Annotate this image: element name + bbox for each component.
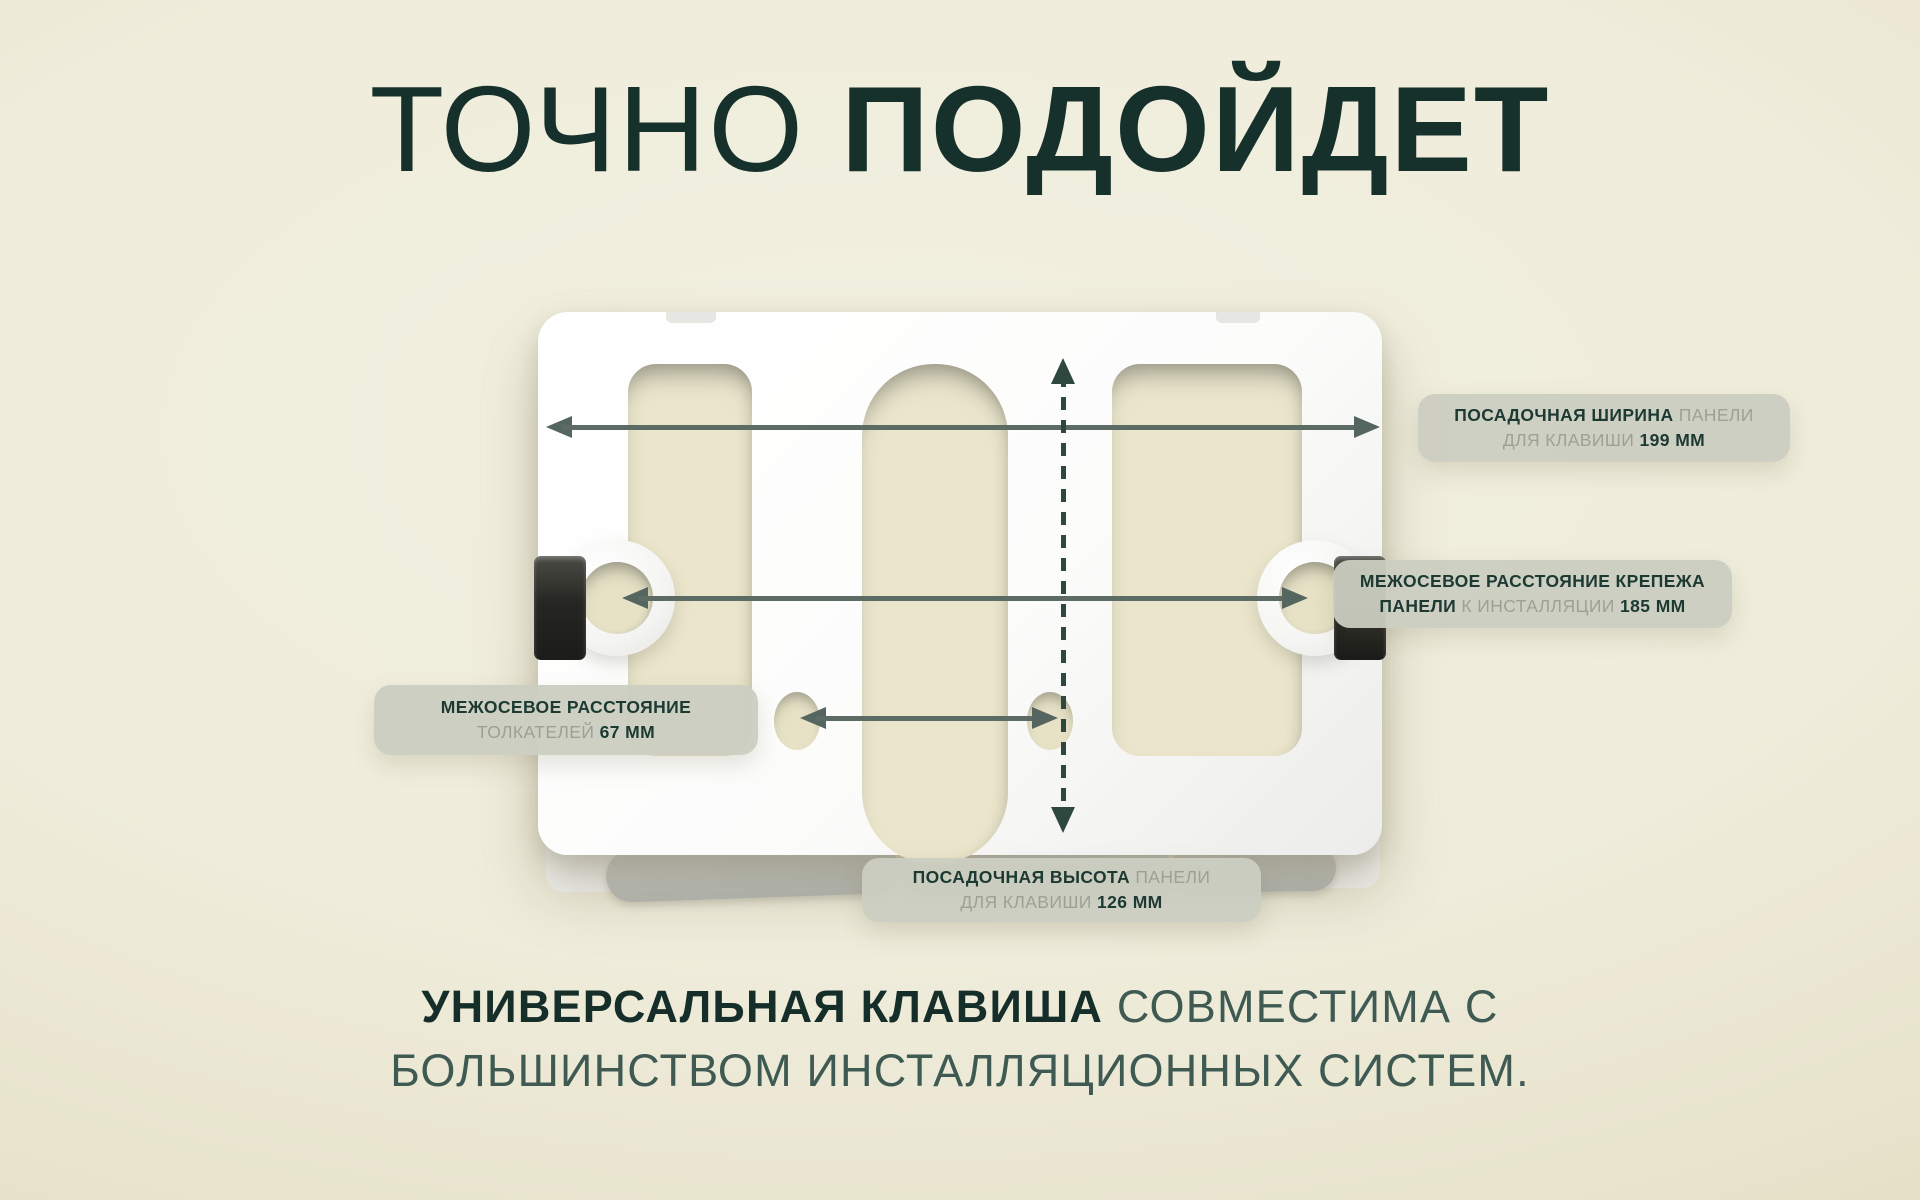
callout-line: ДЛЯ КЛАВИШИ 126 ММ bbox=[960, 890, 1162, 915]
arrow-dashed-shaft bbox=[1061, 374, 1066, 817]
callout-panel-width: ПОСАДОЧНАЯ ШИРИНА ПАНЕЛИ ДЛЯ КЛАВИШИ 199… bbox=[1418, 394, 1790, 462]
arrow-shaft bbox=[562, 425, 1364, 430]
product-mounting-frame bbox=[538, 312, 1382, 855]
frame-notch-left bbox=[666, 312, 716, 323]
arrow-shaft bbox=[816, 716, 1042, 721]
side-clip-left bbox=[534, 556, 586, 660]
arrow-shaft bbox=[638, 596, 1292, 601]
infographic-canvas: ТОЧНО ПОДОЙДЕТ bbox=[0, 0, 1920, 1200]
arrow-head-down-icon bbox=[1051, 807, 1075, 833]
frame-slot-center bbox=[862, 364, 1008, 864]
callout-line: МЕЖОСЕВОЕ РАССТОЯНИЕ КРЕПЕЖА bbox=[1360, 569, 1705, 594]
frame-notch-right bbox=[1216, 312, 1260, 323]
callout-mount-spacing: МЕЖОСЕВОЕ РАССТОЯНИЕ КРЕПЕЖА ПАНЕЛИ К ИН… bbox=[1333, 560, 1732, 628]
tagline-line2: БОЛЬШИНСТВОМ ИНСТАЛЛЯЦИОННЫХ СИСТЕМ. bbox=[390, 1045, 1530, 1096]
callout-line: ТОЛКАТЕЛЕЙ 67 ММ bbox=[477, 720, 655, 745]
callout-line: ПОСАДОЧНАЯ ШИРИНА ПАНЕЛИ bbox=[1454, 403, 1754, 428]
arrow-head-right-icon bbox=[1282, 587, 1308, 609]
arrow-head-right-icon bbox=[1354, 416, 1380, 438]
arrow-head-right-icon bbox=[1032, 707, 1058, 729]
tagline-regular: СОВМЕСТИМА С bbox=[1117, 981, 1499, 1032]
page-title-regular: ТОЧНО bbox=[370, 61, 806, 197]
callout-pusher-spacing: МЕЖОСЕВОЕ РАССТОЯНИЕ ТОЛКАТЕЛЕЙ 67 ММ bbox=[374, 685, 758, 755]
callout-panel-height: ПОСАДОЧНАЯ ВЫСОТА ПАНЕЛИ ДЛЯ КЛАВИШИ 126… bbox=[862, 858, 1261, 922]
tagline: УНИВЕРСАЛЬНАЯ КЛАВИША СОВМЕСТИМА С БОЛЬШ… bbox=[0, 975, 1920, 1103]
page-title: ТОЧНО ПОДОЙДЕТ bbox=[0, 58, 1920, 202]
callout-line: ПОСАДОЧНАЯ ВЫСОТА ПАНЕЛИ bbox=[913, 865, 1211, 890]
tagline-bold: УНИВЕРСАЛЬНАЯ КЛАВИША bbox=[421, 981, 1103, 1032]
callout-line: ДЛЯ КЛАВИШИ 199 ММ bbox=[1503, 428, 1705, 453]
callout-line: ПАНЕЛИ К ИНСТАЛЛЯЦИИ 185 ММ bbox=[1379, 594, 1685, 619]
callout-line: МЕЖОСЕВОЕ РАССТОЯНИЕ bbox=[441, 695, 691, 720]
page-title-bold: ПОДОЙДЕТ bbox=[841, 61, 1550, 197]
